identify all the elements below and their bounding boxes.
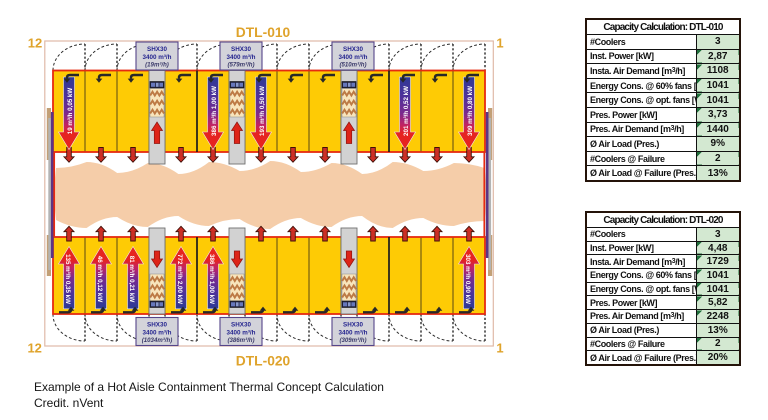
svg-text:3400 m³/h: 3400 m³/h <box>226 54 255 61</box>
svg-text:19 m³/h 0,05 kW: 19 m³/h 0,05 kW <box>67 88 74 135</box>
svg-text:12: 12 <box>28 36 42 51</box>
svg-text:(510m³/h): (510m³/h) <box>339 61 366 68</box>
svg-text:(309m³/h): (309m³/h) <box>339 337 366 344</box>
svg-text:(579m³/h): (579m³/h) <box>227 61 254 68</box>
svg-text:772 m³/h 2,00 kW: 772 m³/h 2,00 kW <box>176 254 183 304</box>
svg-text:SHX30: SHX30 <box>343 322 363 329</box>
svg-text:386 m³/h 1,00 kW: 386 m³/h 1,00 kW <box>211 86 218 136</box>
svg-text:46 m³/h 0,12 kW: 46 m³/h 0,12 kW <box>96 256 103 303</box>
svg-text:3400 m³/h: 3400 m³/h <box>142 54 171 61</box>
svg-text:303 m³/h 0,90 kW: 303 m³/h 0,90 kW <box>464 254 471 304</box>
svg-text:SHX30: SHX30 <box>343 46 363 53</box>
svg-text:135 m³/h 0,35 kW: 135 m³/h 0,35 kW <box>64 254 71 304</box>
svg-text:3400 m³/h: 3400 m³/h <box>338 329 367 336</box>
svg-text:(1034m³/h): (1034m³/h) <box>142 337 172 344</box>
svg-text:(19m³/h): (19m³/h) <box>145 61 169 68</box>
svg-text:DTL-020: DTL-020 <box>236 354 291 369</box>
svg-text:1: 1 <box>496 341 503 356</box>
svg-text:201 m³/h 0,52 kW: 201 m³/h 0,52 kW <box>403 86 410 136</box>
svg-text:309 m³/h 0,80 kW: 309 m³/h 0,80 kW <box>467 86 474 136</box>
svg-text:SHX30: SHX30 <box>147 322 167 329</box>
svg-text:3400 m³/h: 3400 m³/h <box>142 329 171 336</box>
svg-text:1: 1 <box>496 35 503 50</box>
svg-text:DTL-010: DTL-010 <box>236 25 291 40</box>
svg-text:193 m³/h 0,50 kW: 193 m³/h 0,50 kW <box>259 86 266 136</box>
svg-text:(386m³/h): (386m³/h) <box>227 337 254 344</box>
svg-text:SHX30: SHX30 <box>231 46 251 53</box>
svg-text:12: 12 <box>27 341 41 356</box>
svg-text:386 m³/h 1,00 kW: 386 m³/h 1,00 kW <box>208 254 215 304</box>
svg-text:81 m³/h 0,21 kW: 81 m³/h 0,21 kW <box>128 256 135 303</box>
svg-text:3400 m³/h: 3400 m³/h <box>226 329 255 336</box>
svg-text:SHX30: SHX30 <box>147 46 167 53</box>
svg-text:SHX30: SHX30 <box>231 322 251 329</box>
svg-text:3400 m³/h: 3400 m³/h <box>338 54 367 61</box>
